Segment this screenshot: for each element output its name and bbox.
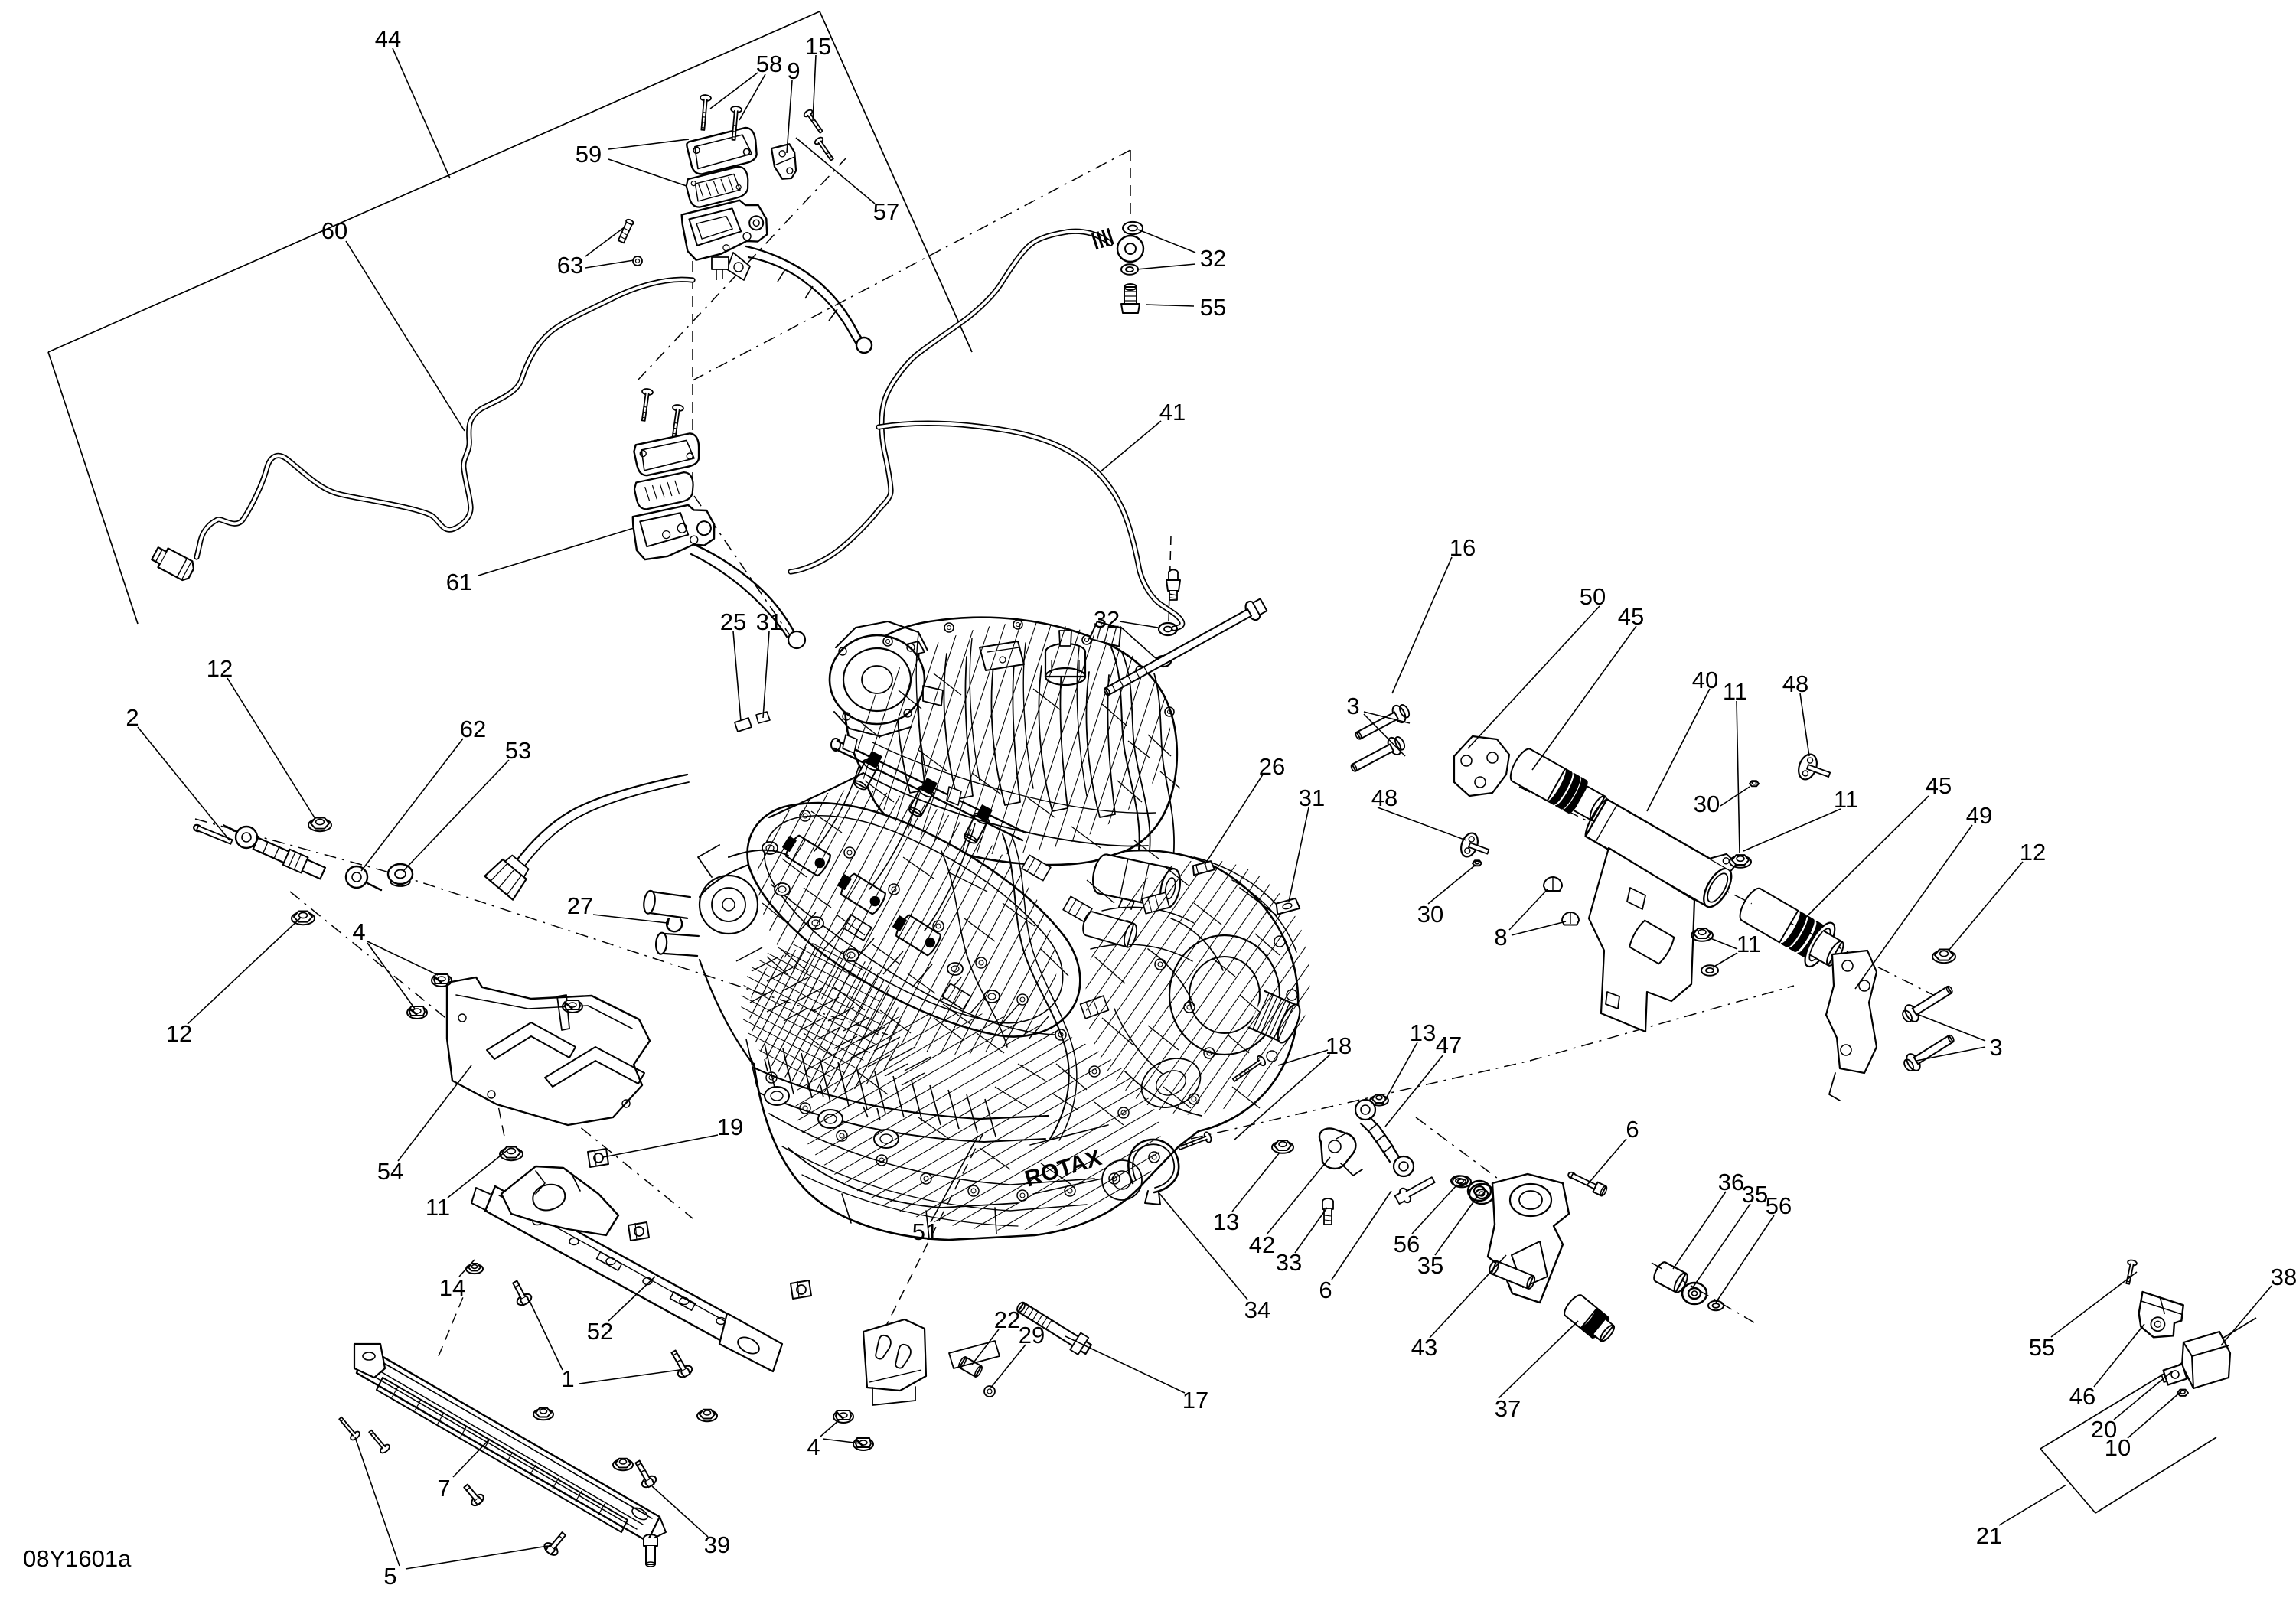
svg-text:35: 35 — [1417, 1252, 1443, 1279]
svg-text:4: 4 — [352, 918, 365, 945]
svg-text:5: 5 — [383, 1563, 396, 1590]
svg-text:46: 46 — [2069, 1383, 2095, 1410]
svg-text:39: 39 — [704, 1531, 730, 1558]
svg-text:48: 48 — [1782, 670, 1808, 697]
svg-text:22: 22 — [994, 1306, 1020, 1333]
svg-text:15: 15 — [805, 33, 831, 60]
svg-text:6: 6 — [1319, 1277, 1332, 1303]
svg-text:11: 11 — [1723, 678, 1747, 705]
svg-text:56: 56 — [1766, 1192, 1792, 1219]
svg-text:38: 38 — [2271, 1264, 2296, 1290]
svg-text:13: 13 — [1410, 1019, 1436, 1046]
svg-text:51: 51 — [912, 1218, 938, 1245]
svg-text:19: 19 — [717, 1114, 743, 1140]
svg-text:12: 12 — [207, 655, 233, 682]
svg-text:16: 16 — [1450, 534, 1476, 561]
svg-text:36: 36 — [1718, 1169, 1744, 1195]
svg-text:44: 44 — [375, 25, 401, 52]
svg-text:41: 41 — [1159, 399, 1186, 426]
svg-text:2: 2 — [126, 704, 139, 731]
svg-text:31: 31 — [1299, 784, 1325, 811]
svg-text:62: 62 — [460, 716, 486, 742]
svg-text:11: 11 — [1834, 786, 1858, 813]
svg-text:26: 26 — [1259, 753, 1285, 780]
svg-text:57: 57 — [873, 198, 899, 225]
svg-text:21: 21 — [1976, 1522, 2002, 1549]
svg-text:55: 55 — [2029, 1334, 2055, 1361]
svg-text:53: 53 — [505, 737, 531, 764]
svg-text:13: 13 — [1213, 1208, 1239, 1235]
svg-text:9: 9 — [787, 57, 800, 84]
svg-text:30: 30 — [1417, 901, 1443, 928]
svg-text:12: 12 — [166, 1020, 192, 1047]
svg-text:60: 60 — [321, 217, 347, 244]
svg-text:40: 40 — [1692, 667, 1718, 693]
svg-text:14: 14 — [439, 1274, 465, 1301]
svg-text:6: 6 — [1626, 1116, 1639, 1143]
svg-text:10: 10 — [2105, 1434, 2131, 1461]
svg-text:42: 42 — [1249, 1231, 1275, 1258]
svg-text:17: 17 — [1182, 1387, 1208, 1414]
svg-text:30: 30 — [1694, 791, 1720, 817]
svg-text:45: 45 — [1618, 603, 1644, 630]
svg-text:35: 35 — [1742, 1181, 1768, 1208]
svg-text:8: 8 — [1494, 924, 1507, 951]
svg-text:37: 37 — [1495, 1395, 1521, 1422]
svg-text:32: 32 — [1200, 245, 1226, 272]
svg-text:31: 31 — [756, 608, 782, 635]
svg-text:55: 55 — [1200, 294, 1226, 321]
svg-text:1: 1 — [561, 1365, 574, 1392]
svg-text:49: 49 — [1966, 802, 1992, 829]
svg-text:4: 4 — [807, 1433, 820, 1460]
svg-text:34: 34 — [1244, 1296, 1270, 1323]
svg-text:48: 48 — [1371, 784, 1397, 811]
svg-text:3: 3 — [1346, 693, 1359, 719]
svg-text:43: 43 — [1411, 1334, 1437, 1361]
svg-text:45: 45 — [1926, 772, 1952, 799]
svg-text:32: 32 — [1094, 606, 1120, 633]
svg-text:54: 54 — [377, 1158, 403, 1185]
svg-text:33: 33 — [1276, 1249, 1302, 1276]
svg-text:58: 58 — [756, 51, 782, 77]
svg-text:12: 12 — [2020, 839, 2046, 866]
svg-text:18: 18 — [1326, 1032, 1352, 1059]
svg-text:08Y1601a: 08Y1601a — [23, 1545, 132, 1572]
svg-text:25: 25 — [720, 608, 746, 635]
svg-text:3: 3 — [1989, 1034, 2002, 1061]
svg-text:59: 59 — [576, 141, 602, 168]
svg-text:11: 11 — [426, 1194, 450, 1221]
svg-text:61: 61 — [446, 569, 472, 595]
svg-text:29: 29 — [1019, 1322, 1045, 1349]
svg-text:52: 52 — [587, 1318, 613, 1345]
svg-text:11: 11 — [1737, 931, 1761, 957]
svg-text:47: 47 — [1436, 1032, 1462, 1058]
svg-text:27: 27 — [567, 892, 593, 919]
svg-text:56: 56 — [1394, 1231, 1420, 1257]
svg-text:50: 50 — [1580, 583, 1606, 610]
svg-text:7: 7 — [437, 1475, 450, 1502]
svg-text:63: 63 — [557, 252, 583, 279]
